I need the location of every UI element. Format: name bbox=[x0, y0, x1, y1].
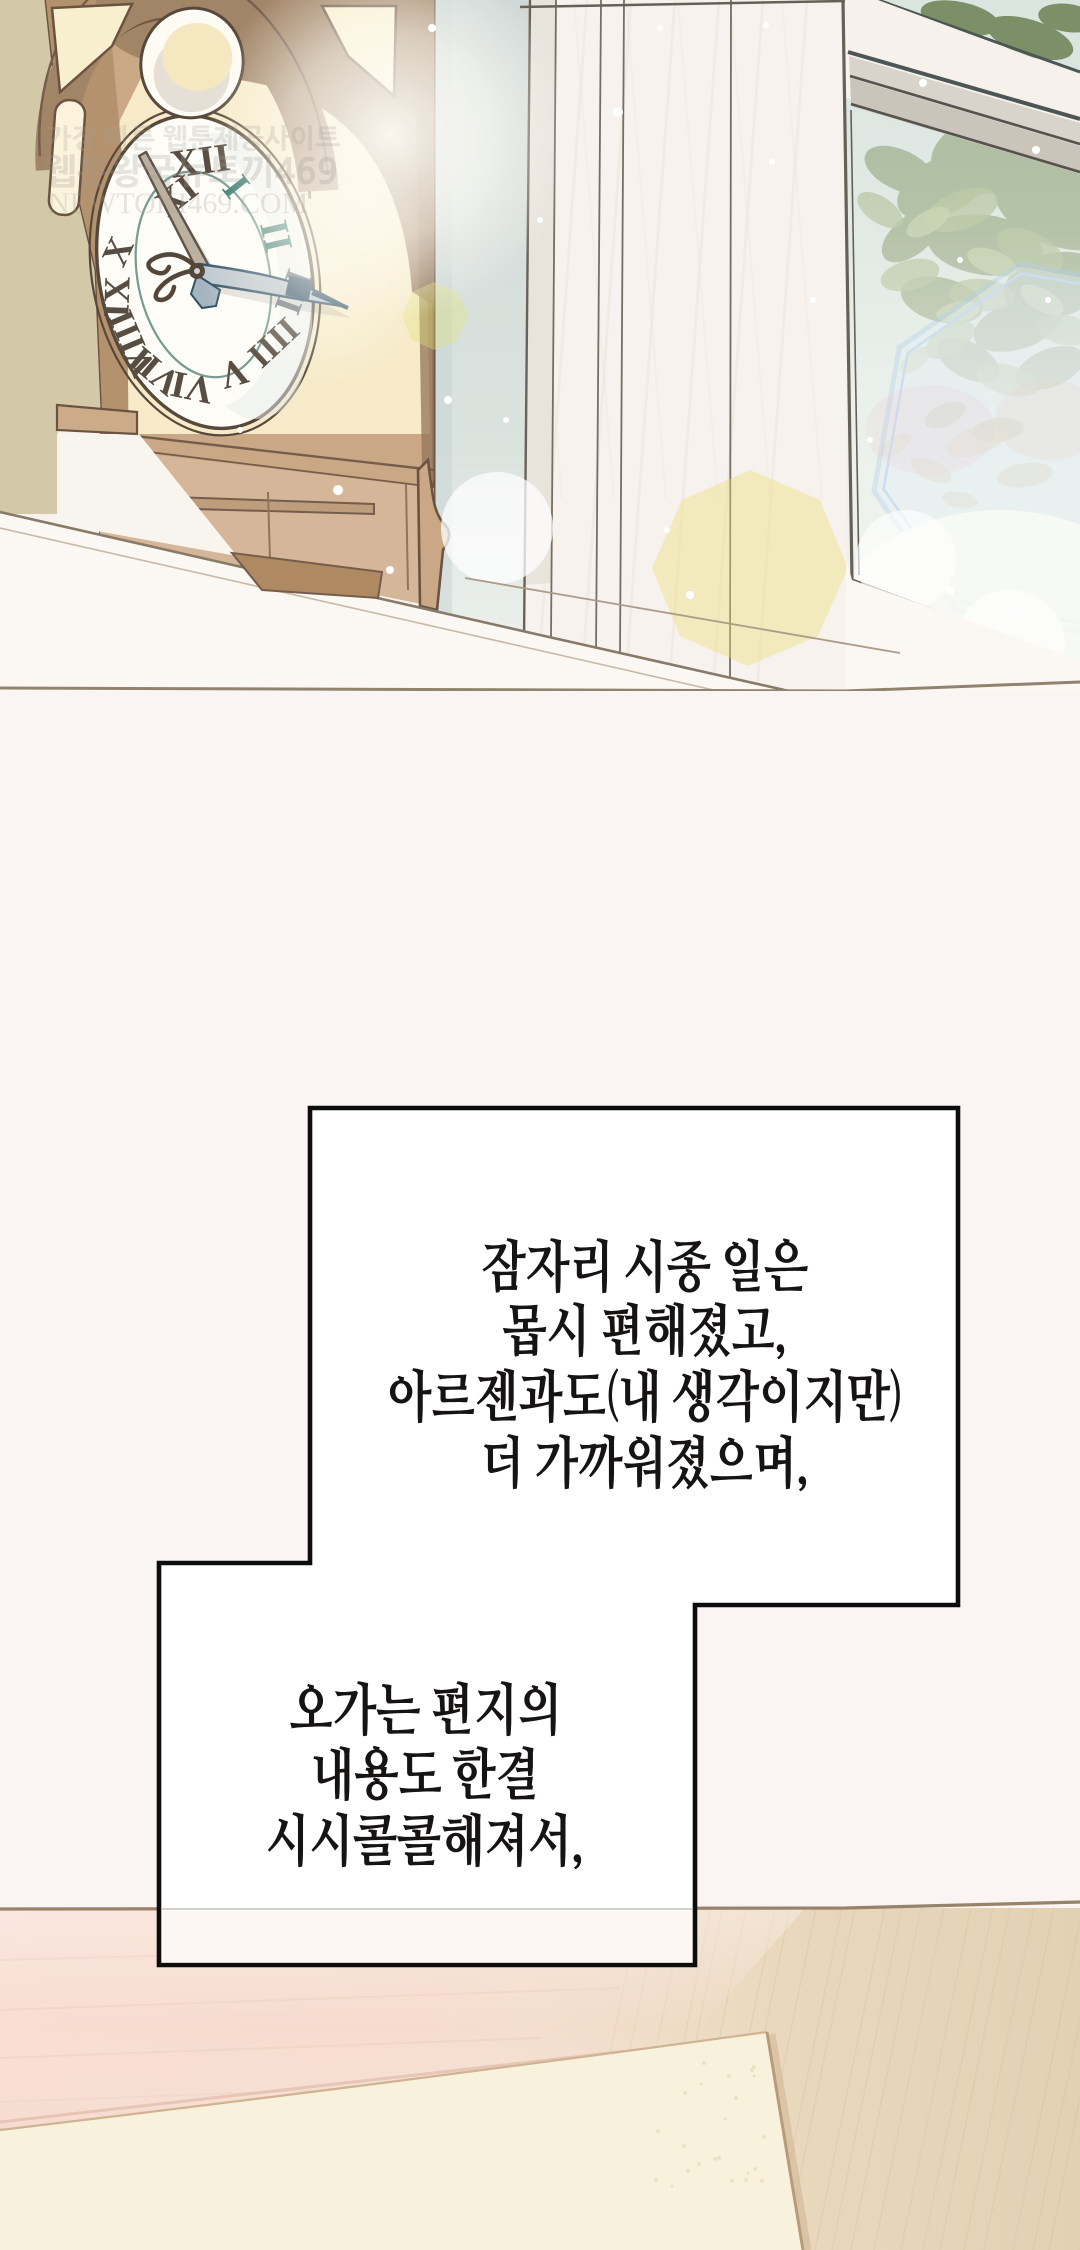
svg-text:NEWTOKI469.COM: NEWTOKI469.COM bbox=[48, 187, 308, 220]
